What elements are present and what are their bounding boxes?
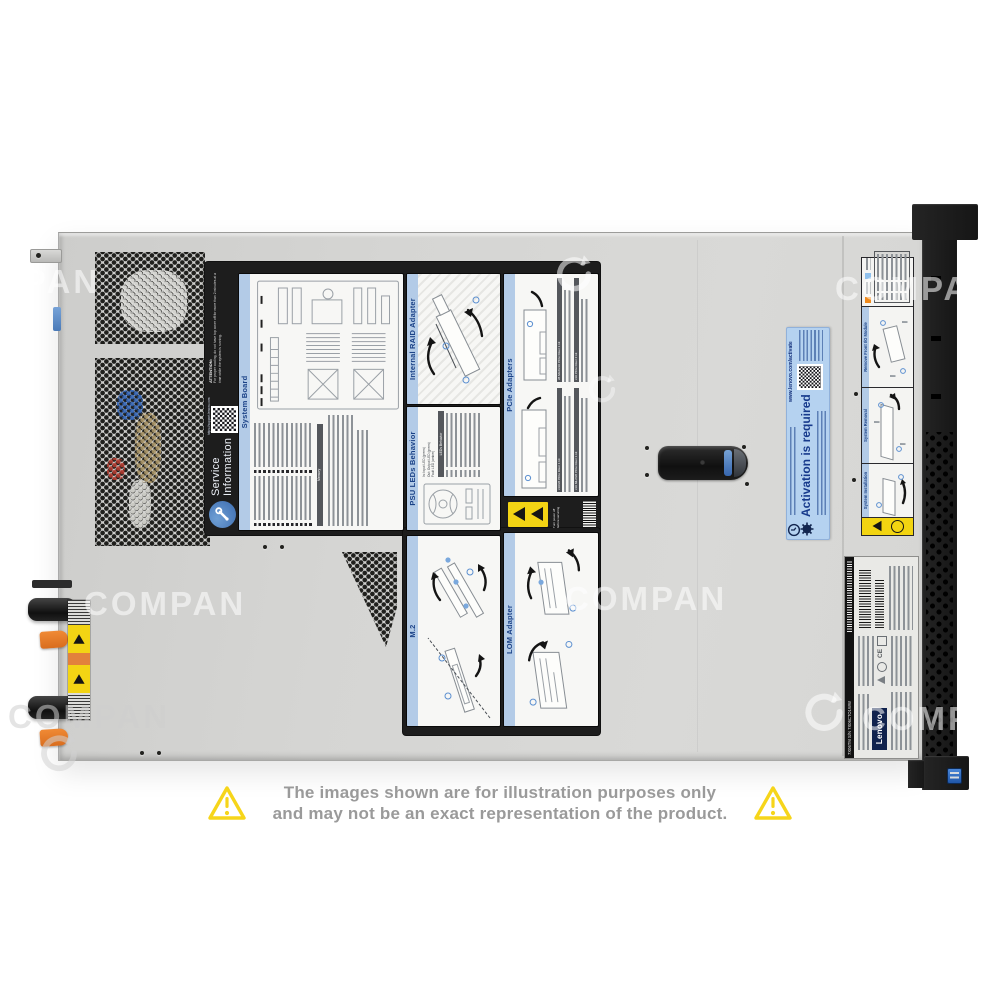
disclaimer-text: The images shown are for illustration pu… (273, 782, 728, 824)
cert-circle-icon (877, 662, 887, 672)
vent-cable-tan (135, 413, 161, 483)
rear-thumbscrew-tab (30, 249, 62, 263)
rear-vent-grille (95, 252, 205, 344)
svg-text:!: ! (901, 443, 907, 445)
label-barcode (583, 501, 596, 528)
riser-option-name: x16/x8 PCIe Riser 1 kit (557, 388, 562, 492)
activation-qr-code (799, 366, 821, 388)
top-cover-release-latch[interactable] (658, 446, 748, 480)
lom-adapter-header: LOM Adapter (504, 533, 515, 726)
psu2-release-latch[interactable] (39, 728, 68, 747)
screw (854, 392, 858, 396)
lom-adapter-title: LOM Adapter (505, 605, 514, 654)
psu-barcode-label (68, 693, 90, 720)
psu-leds-panel: PSU LEDs Behavior In: Input LED (green) … (407, 407, 500, 530)
riser-option-name: x16 ML2/x8 PCIe Riser 1 kit (574, 388, 579, 492)
rear-vent-grille (95, 358, 210, 546)
system-installation-title: System Installation (863, 472, 868, 509)
remove-front-io-diagram: !! (869, 307, 912, 387)
riser-option: x16 PCIe Riser 2 kit (574, 278, 589, 382)
screw (140, 751, 144, 755)
latch-blue-indicator (724, 450, 732, 476)
svg-text:!: ! (891, 375, 897, 377)
remove-front-io-section: Remove Front I/O Module !! (862, 306, 913, 387)
activation-label-background: Activation is required www.lenovo.com/ac… (786, 327, 830, 540)
warning-triangle-icon (513, 508, 525, 522)
psu-legend-item: Fault LED (amber) (431, 411, 436, 477)
service-information-label: Service Information https://support.leno… (205, 262, 600, 735)
support-url: https://support.lenovo.com (207, 398, 211, 435)
system-installation-header: System Installation (862, 464, 869, 517)
activation-url: www.lenovo.com/activate (788, 341, 794, 402)
front-rack-rail (922, 216, 957, 790)
service-info-title-line2: Information (222, 438, 234, 496)
system-board-title: System Board (240, 376, 249, 429)
screw (742, 445, 746, 449)
rating-fine-print (889, 566, 913, 630)
rail-slot (931, 336, 941, 341)
activation-fine-print (799, 330, 823, 361)
rating-label-background: 7X06TM S/N 7X06CTO1WW Lenovo CE (845, 557, 918, 758)
system-installation-section: System Installation (862, 463, 913, 517)
activation-fine-print (817, 411, 826, 515)
service-info-title: Service Information (210, 438, 234, 496)
system-board-diagram (254, 278, 402, 411)
psu-leds-title: PSU LEDs Behavior (408, 431, 417, 505)
xcc-gear-icon (799, 521, 815, 537)
psu-orange-label (68, 653, 90, 665)
service-info-title-line1: Service (210, 438, 222, 496)
m2-diagram-install (420, 632, 496, 724)
memory-table-header: Memory (317, 424, 323, 526)
screw (745, 482, 749, 486)
screw (645, 473, 649, 477)
riser-option: x16/x8 PCIe Riser 1 kit (557, 388, 572, 492)
service-info-logo (209, 501, 236, 528)
rating-barcode (859, 570, 871, 628)
wrench-icon (214, 506, 231, 523)
lift-warning-section (862, 517, 913, 535)
attention-note: ATTENTION: For proper cooling, do not ha… (208, 267, 222, 383)
internal-raid-header: Internal RAID Adapter (407, 274, 418, 404)
m2-diagram-remove (420, 538, 496, 630)
clock-icon (787, 523, 801, 537)
ce-mark: CE (877, 649, 884, 658)
system-removal-diagram: !! (869, 388, 912, 463)
rack-install-label-background: System Installation System Removal !! Re… (862, 258, 913, 535)
riser-options: x16/x8 PCIe Riser 1 kit x8 ML2/x16 PCIe … (557, 278, 589, 492)
leds-behavior-table-header: LEDs Behavior (438, 411, 444, 477)
cert-triangle-icon (877, 676, 885, 684)
warning-triangle-icon (753, 784, 793, 822)
vent-cable-red (107, 458, 125, 480)
system-installation-diagram (869, 464, 912, 517)
latch-end-cap (734, 449, 746, 477)
warning-note-text: Turn power off before servicing (552, 501, 560, 528)
machine-type-text: 7X06TM S/N 7X06CTO1WW (847, 701, 852, 755)
lom-adapter-panel: LOM Adapter (504, 533, 598, 726)
two-person-lift-icon (891, 520, 904, 533)
disclaimer: The images shown are for illustration pu… (0, 782, 1000, 824)
screw (36, 253, 41, 258)
support-qr-code (213, 408, 236, 431)
internal-raid-panel: Internal RAID Adapter (407, 274, 500, 404)
remove-front-io-header: Remove Front I/O Module (862, 307, 869, 387)
screw (645, 446, 649, 450)
rating-fine-print (891, 636, 913, 686)
psu-barcode-label (68, 600, 90, 625)
lenovo-logo: Lenovo (872, 708, 887, 750)
rear-blue-touchpoint[interactable] (53, 307, 61, 331)
lenovo-rating-label: 7X06TM S/N 7X06CTO1WW Lenovo CE (845, 557, 918, 758)
rail-perforations (926, 432, 953, 762)
rail-slot (931, 394, 941, 399)
screw (852, 478, 856, 482)
server-top-view-photo: Service Information https://support.leno… (0, 0, 1000, 1000)
pcie-adapters-panel: PCIe Adapters x16/x8 PCIe Riser 1 kit x8… (504, 274, 598, 496)
rail-slot (931, 276, 941, 281)
electrical-warning-block (508, 502, 548, 527)
system-removal-section: System Removal !! (862, 387, 913, 463)
psu-warning-label (68, 625, 90, 653)
rating-fine-print (858, 636, 874, 686)
lom-diagram-remove (517, 535, 589, 629)
riser-option-name: x8 ML2/x16 PCIe Riser 1 kit (557, 278, 562, 382)
m2-title: M.2 (408, 624, 417, 637)
riser-option-name: x16 PCIe Riser 2 kit (574, 278, 579, 382)
vent-see-through (121, 270, 187, 332)
svg-text:!: ! (903, 321, 909, 323)
strip-barcode (847, 560, 852, 632)
disclaimer-line1: The images shown are for illustration pu… (273, 782, 728, 803)
riser1-diagram (518, 392, 554, 492)
system-board-header: System Board (239, 274, 250, 530)
psu1-release-latch[interactable] (39, 630, 68, 649)
activation-title: Activation is required (799, 391, 813, 517)
cert-square-icon (877, 636, 887, 646)
psu-leds-header: PSU LEDs Behavior (407, 407, 418, 530)
psu-leds-legend: In: Input LED (green) Out: Output LED (g… (422, 411, 496, 477)
lom-diagram-install (517, 631, 589, 725)
rating-fine-print (858, 694, 869, 750)
riser-option: x16 ML2/x8 PCIe Riser 1 kit (574, 388, 589, 492)
attention-body: For proper cooling, do not have top cove… (213, 267, 222, 383)
activation-fine-print (790, 427, 797, 515)
system-board-legend: Memory (254, 415, 402, 526)
warning-triangle-icon (531, 508, 543, 522)
system-removal-title: System Removal (863, 409, 868, 442)
warning-triangle-icon (207, 784, 247, 822)
vent-see-through (129, 480, 151, 528)
riser-option: x8 ML2/x16 PCIe Riser 1 kit (557, 278, 572, 382)
system-removal-header: System Removal (862, 388, 869, 463)
psu-label-stack (68, 600, 90, 720)
blue-led-swatch (865, 273, 871, 279)
processor-badge (948, 769, 961, 783)
vent-cable-blue (117, 390, 143, 420)
svg-text:!: ! (875, 421, 881, 423)
machine-type-strip: 7X06TM S/N 7X06CTO1WW (845, 557, 854, 758)
rating-barcode (875, 580, 884, 628)
m2-header: M.2 (407, 536, 418, 726)
pcie-adapters-title: PCIe Adapters (505, 358, 514, 412)
led-legend-section (862, 248, 913, 306)
disclaimer-line2: and may not be an exact representation o… (273, 803, 728, 824)
internal-raid-title: Internal RAID Adapter (408, 298, 417, 380)
rating-fine-print (891, 692, 913, 750)
remove-front-io-title: Remove Front I/O Module (863, 322, 868, 372)
raid-adapter-diagram (418, 274, 498, 404)
cover-seam (842, 236, 844, 756)
activation-label: Activation is required www.lenovo.com/ac… (786, 327, 830, 540)
screw (157, 751, 161, 755)
label-warning-column: Turn power off before servicing (504, 499, 598, 530)
led-legend-swatches (865, 251, 871, 303)
system-board-panel: System Board Memory (239, 274, 403, 530)
amber-led-swatch (865, 297, 871, 303)
warning-triangle-icon (872, 521, 881, 532)
psu-warning-label (68, 665, 90, 693)
psu-diagram (422, 482, 494, 526)
rack-ear-top (912, 204, 978, 240)
riser2-diagram (518, 284, 554, 384)
rack-install-label: System Installation System Removal !! Re… (862, 258, 913, 535)
pcie-adapters-header: PCIe Adapters (504, 274, 515, 496)
psu1-edge-plate (32, 580, 72, 588)
cover-seam (697, 240, 698, 752)
m2-panel: M.2 (407, 536, 500, 726)
latch-screw (700, 460, 705, 465)
led-legend-table (874, 251, 910, 303)
